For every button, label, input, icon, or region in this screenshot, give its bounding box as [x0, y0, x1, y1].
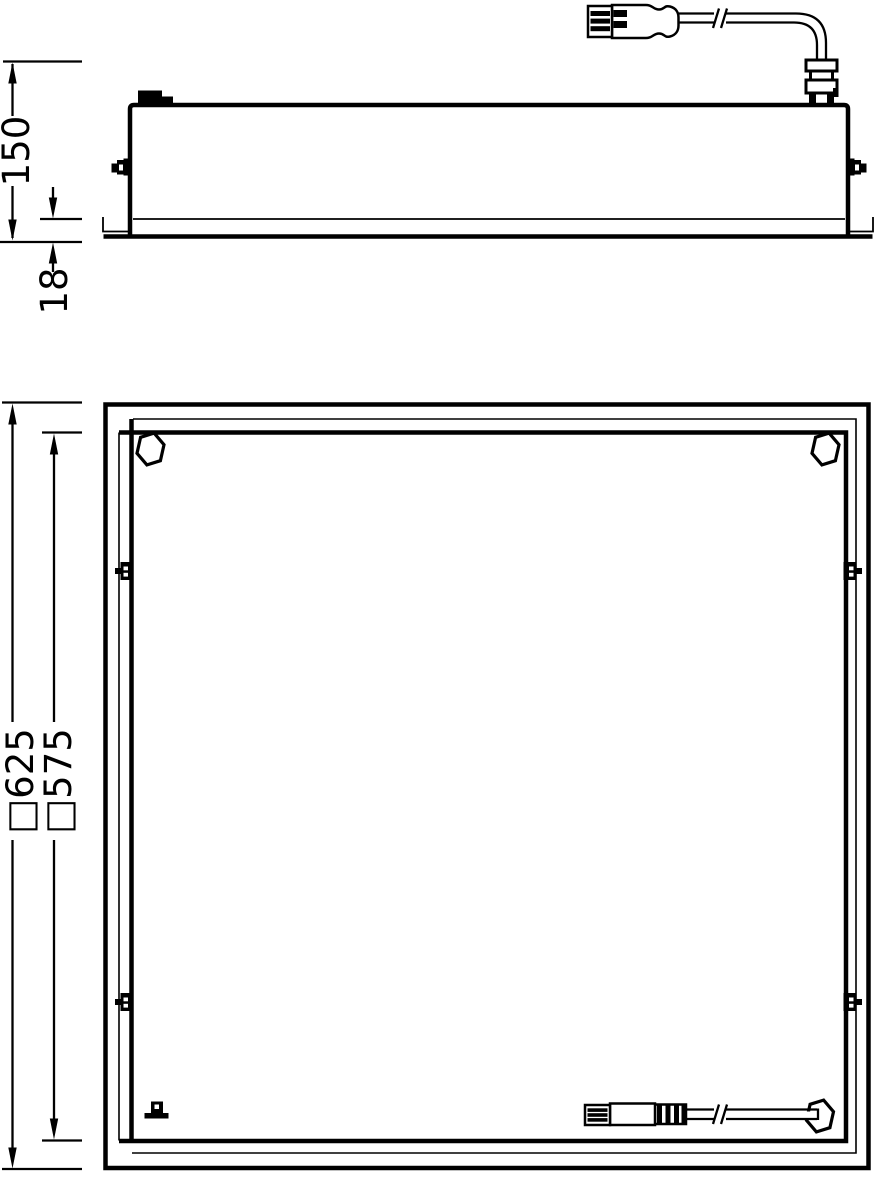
mounting-clip	[115, 993, 134, 1011]
clip-hole	[849, 1004, 854, 1008]
connector-body	[610, 1104, 655, 1126]
trim-left-profile	[103, 217, 130, 232]
supply-cable	[588, 5, 826, 60]
frame-outline-625	[106, 405, 869, 1169]
connector-rib	[682, 1105, 687, 1125]
arrow-down-icon	[49, 198, 57, 219]
dimension-label-height: 150	[0, 116, 38, 187]
connector-rib	[657, 1105, 662, 1125]
cable-inner-line	[726, 23, 817, 61]
arrow-up-icon	[8, 404, 16, 425]
connector-rib	[674, 1105, 679, 1125]
clip-nub	[856, 568, 862, 574]
clip-nub	[856, 999, 862, 1005]
plug-terminal-stripe	[591, 19, 611, 24]
side-screw-left	[112, 159, 130, 176]
clip-body	[121, 562, 134, 580]
panel-outline-575	[119, 433, 846, 1142]
clip-hole	[849, 998, 854, 1002]
screw-notch	[119, 165, 123, 171]
screw-notch	[855, 165, 859, 171]
cable-outer-line	[726, 14, 826, 61]
gland-foot	[827, 93, 834, 104]
arrow-up-icon	[49, 243, 57, 264]
clip-hole	[849, 567, 854, 571]
plug-terminal-stripe	[591, 26, 611, 31]
plan-view: □625 □575	[0, 403, 869, 1170]
gland-foot	[809, 93, 816, 104]
cable-break-icon	[721, 1105, 727, 1125]
dimension-label-recess: 18	[33, 267, 76, 314]
housing-outline	[130, 105, 848, 237]
arrow-down-icon	[8, 1148, 16, 1169]
technical-drawing: 150 18	[0, 0, 883, 1200]
terminal-stripe	[588, 1108, 608, 1112]
corner-bracket	[145, 1102, 169, 1119]
cable-assembly-plan	[585, 1100, 834, 1132]
mounting-clip	[115, 562, 134, 580]
dimension-150: 150	[0, 62, 82, 243]
trim-right-profile	[848, 217, 873, 232]
clip-nub	[115, 568, 121, 574]
cable-break-icon	[713, 1105, 719, 1125]
plug-pin	[614, 10, 628, 17]
arrow-down-icon	[50, 1119, 58, 1140]
dimension-575: □575	[37, 433, 82, 1141]
clip-hole	[124, 567, 129, 571]
arrow-down-icon	[8, 220, 16, 241]
dimension-18: 18	[33, 187, 82, 315]
gland-side-tab	[833, 88, 839, 97]
cable-gland-side	[806, 60, 839, 104]
side-view: 150 18	[0, 5, 873, 315]
screw-tip	[861, 164, 867, 173]
clip-body	[121, 993, 134, 1011]
arrow-up-icon	[50, 434, 58, 455]
dimension-drawing-canvas: 150 18	[0, 0, 883, 1200]
arrow-up-icon	[8, 63, 16, 84]
plug-terminal-stripe	[591, 11, 611, 16]
gland-cable-gap	[801, 1112, 817, 1119]
cable-break-icon	[721, 9, 727, 29]
gland-nut	[806, 80, 837, 93]
screw-collar	[124, 159, 130, 176]
clip-hole	[124, 1004, 129, 1008]
clip-nub	[115, 999, 121, 1005]
clip-step	[162, 97, 173, 105]
hex-bolt-icon	[812, 433, 839, 465]
terminal-stripe	[588, 1113, 608, 1117]
ceiling-trim	[103, 217, 873, 237]
mounting-clip	[844, 993, 863, 1011]
clip-hole	[124, 998, 129, 1002]
clip-hole	[849, 573, 854, 577]
clip-block	[138, 91, 162, 105]
side-screw-right	[849, 159, 867, 176]
clip-hole	[124, 573, 129, 577]
dimension-label-panel: □575	[37, 728, 80, 834]
housing-top-clip	[138, 91, 173, 105]
clip-body	[844, 562, 857, 580]
clip-body	[844, 993, 857, 1011]
plug-pin	[614, 21, 628, 28]
mounting-clip	[844, 562, 863, 580]
cable-break-icon	[713, 9, 719, 29]
screw-tip	[112, 164, 118, 173]
gland-top-ring	[806, 60, 837, 71]
hex-bolt-icon	[137, 433, 164, 465]
cutout-edge-thin	[132, 419, 856, 1153]
connector-rib	[666, 1105, 671, 1125]
terminal-stripe	[588, 1118, 608, 1122]
bracket-base	[145, 1113, 169, 1119]
dimension-label-frame: □625	[0, 728, 42, 834]
bracket-hole	[155, 1105, 160, 1110]
